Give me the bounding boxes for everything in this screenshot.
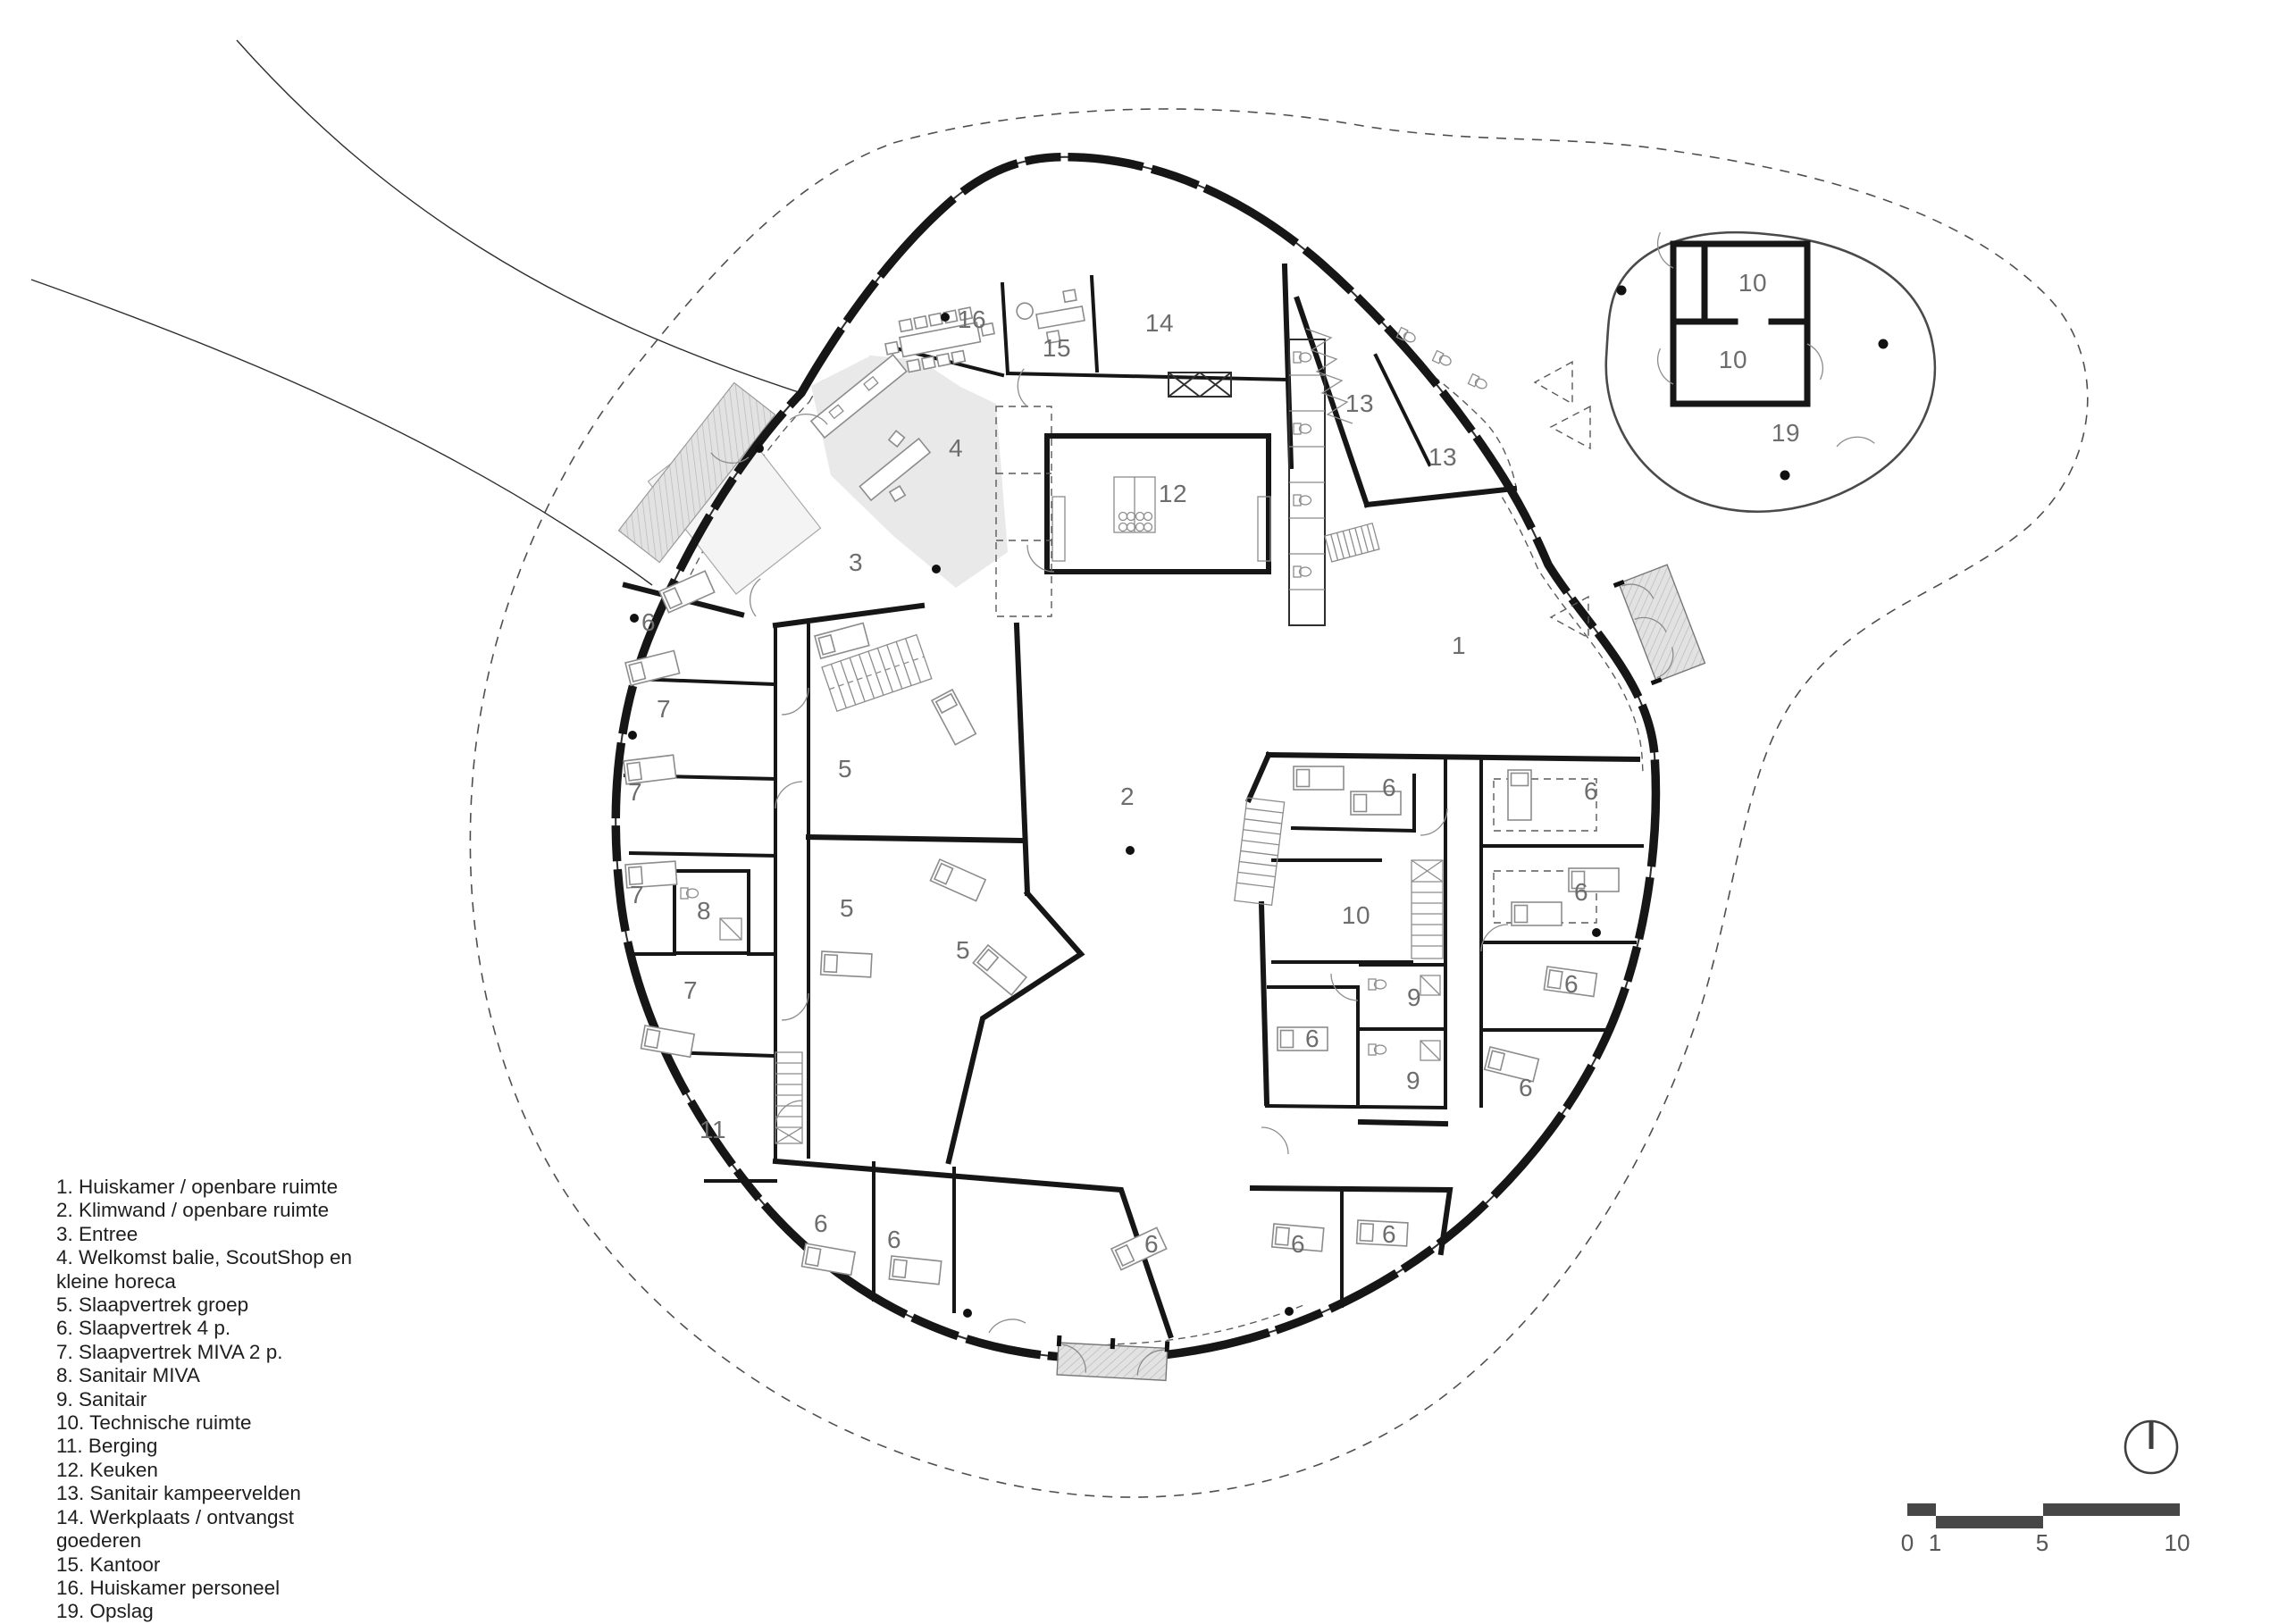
room-label: 14 [1145,309,1174,338]
room-label: 16 [958,306,986,334]
scale-bar-label: 0 [1901,1529,1914,1557]
legend-item: 13. Sanitair kampeervelden [56,1482,371,1505]
room-label: 6 [887,1226,901,1254]
room-label: 5 [838,755,852,783]
legend-item: 11. Berging [56,1435,371,1458]
room-label: 1 [1452,632,1466,660]
room-label: 6 [1574,878,1588,907]
room-label: 6 [1305,1025,1319,1053]
room-label: 11 [700,1116,726,1144]
legend-item: 3. Entree [56,1223,371,1246]
legend-item: 6. Slaapvertrek 4 p. [56,1317,371,1340]
room-label: 19 [1772,419,1800,448]
room-label: 5 [840,894,854,923]
room-label: 6 [1382,1220,1396,1249]
room-label: 6 [1291,1230,1305,1259]
room-label: 7 [630,881,644,909]
room-label: 10 [1719,346,1747,374]
room-label: 6 [1382,774,1396,802]
room-label: 5 [956,936,970,965]
legend-item: 4. Welkomst balie, ScoutShop en kleine h… [56,1246,371,1293]
legend: 1. Huiskamer / openbare ruimte2. Klimwan… [56,1176,371,1624]
room-label: 8 [697,897,711,925]
room-label: 6 [1519,1074,1533,1102]
entrance-area-shading [619,356,1008,594]
room-label: 7 [657,695,671,724]
scale-bar-label: 1 [1929,1529,1941,1557]
room-label: 9 [1406,1067,1420,1095]
scale-bar-segment [1907,1503,1936,1516]
legend-item: 16. Huiskamer personeel [56,1577,371,1600]
scale-bar-label: 5 [2036,1529,2048,1557]
room-label: 6 [814,1210,828,1238]
room-label: 10 [1738,269,1767,297]
legend-item: 9. Sanitair [56,1388,371,1411]
room-label: 7 [628,778,642,807]
room-label: 9 [1407,984,1421,1012]
room-label: 6 [641,608,656,637]
room-label: 10 [1342,901,1370,930]
room-label: 13 [1345,389,1374,418]
scale-bar-segment [2043,1503,2180,1516]
legend-item: 14. Werkplaats / ontvangst goederen [56,1506,371,1553]
room-label: 15 [1043,334,1071,363]
room-label: 6 [1144,1230,1159,1259]
legend-item: 2. Klimwand / openbare ruimte [56,1199,371,1222]
floor-plan-screenshot: 1615144121313312677787115556666661069966… [0,0,2287,1617]
room-label: 2 [1120,783,1135,811]
scale-bar-segment [1936,1516,2043,1528]
legend-item: 19. Opslag [56,1600,371,1623]
room-label: 13 [1428,443,1457,472]
east-entrance-canopy [1613,563,1705,685]
landscape-triangles [1535,362,1590,638]
room-label: 12 [1159,480,1187,508]
legend-item: 15. Kantoor [56,1553,371,1577]
scale-bar-label: 10 [2165,1529,2191,1557]
legend-item: 10. Technische ruimte [56,1411,371,1435]
legend-item: 12. Keuken [56,1459,371,1482]
room-label: 6 [1564,970,1579,999]
exterior-steps [1325,523,1379,562]
north-indicator-icon [2125,1421,2177,1473]
main-building [615,157,1705,1381]
outbuilding [1606,232,1935,512]
room-label: 3 [849,548,863,577]
room-label: 7 [683,976,698,1005]
legend-item: 1. Huiskamer / openbare ruimte [56,1176,371,1199]
room-label: 6 [1584,777,1598,806]
legend-item: 5. Slaapvertrek groep [56,1293,371,1317]
room-label: 4 [949,434,963,463]
legend-item: 8. Sanitair MIVA [56,1364,371,1387]
legend-item: 7. Slaapvertrek MIVA 2 p. [56,1341,371,1364]
